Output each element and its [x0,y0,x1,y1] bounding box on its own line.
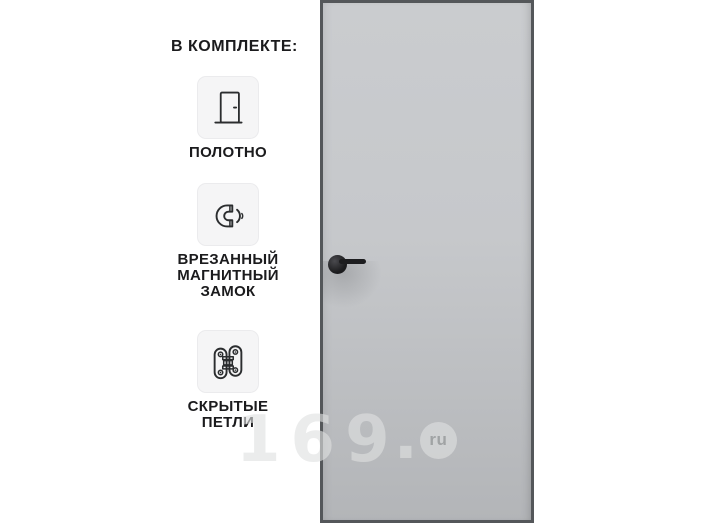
kit-item-magnetic-lock: ВРЕЗАННЫЙ МАГНИТНЫЙ ЗАМОК [163,183,293,300]
hidden-hinges-icon [207,341,249,383]
door-panel [320,0,534,523]
kit-heading: В КОМПЛЕКТЕ: [171,38,298,56]
kit-item-hidden-hinges: СКРЫТЫЕ ПЕТЛИ [163,330,293,431]
icon-card [197,330,259,393]
kit-item-door-leaf: ПОЛОТНО [163,76,293,161]
kit-item-label: СКРЫТЫЕ ПЕТЛИ [163,399,293,431]
door-leaf-icon [208,87,248,129]
magnetic-lock-icon [207,194,249,236]
icon-card [197,183,259,246]
door-handle-lever [339,259,366,264]
icon-card [197,76,259,139]
product-image: В КОМПЛЕКТЕ: ПОЛОТНО [0,0,702,523]
kit-item-label: ПОЛОТНО [189,145,267,161]
door-handle-rosette [328,255,347,274]
kit-item-label: ВРЕЗАННЫЙ МАГНИТНЫЙ ЗАМОК [163,252,293,300]
